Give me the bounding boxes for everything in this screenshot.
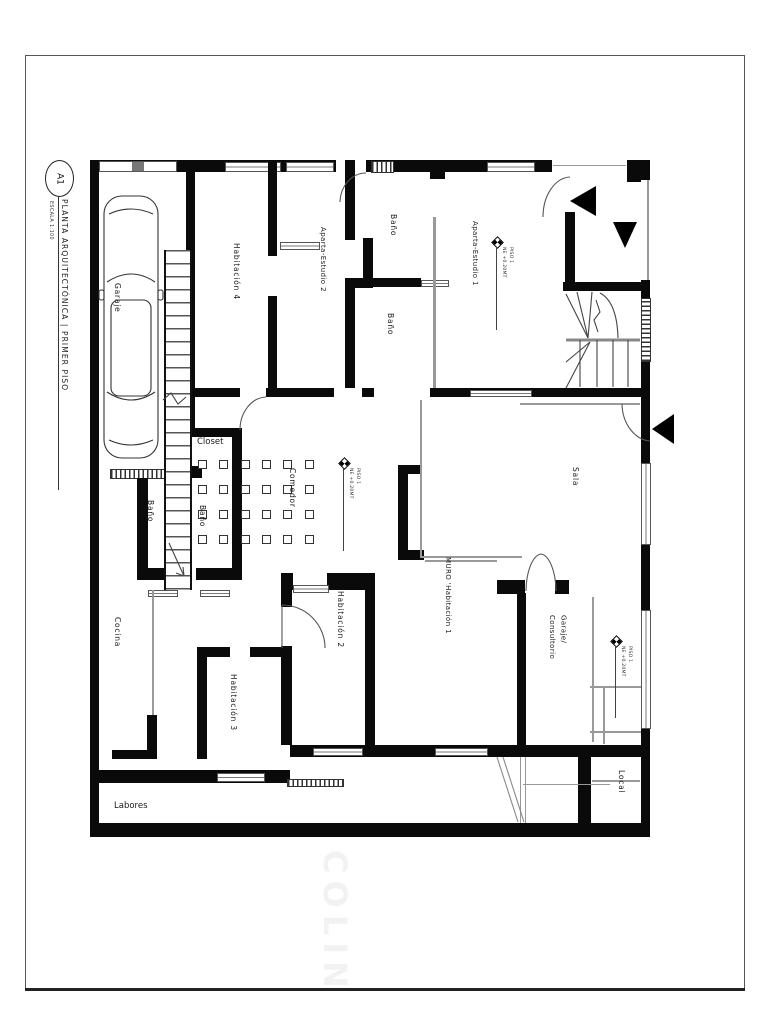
counter-line xyxy=(152,590,154,715)
room-label-labores: Labores xyxy=(114,801,148,811)
wall xyxy=(430,168,445,179)
thin-wall xyxy=(647,180,649,280)
wall xyxy=(196,568,242,580)
window xyxy=(487,162,535,172)
wall xyxy=(90,823,650,837)
room-label-bano: Baño xyxy=(389,214,398,236)
room-label-bano: Baño xyxy=(198,505,207,527)
room-label-aparta-estudio1: Aparta-Estudio 1 xyxy=(471,221,479,286)
room-label-sala: Sala xyxy=(571,467,580,486)
wall xyxy=(281,573,292,607)
room-label-bano: Baño xyxy=(146,500,155,522)
wall xyxy=(497,580,525,594)
wall xyxy=(90,160,99,837)
window xyxy=(286,162,334,172)
door-track xyxy=(603,686,605,744)
entrance-opening xyxy=(552,160,627,172)
dimension-line xyxy=(523,784,610,785)
room-label-habitacion4: Habitación 4 xyxy=(232,243,241,300)
door-sill xyxy=(200,590,230,597)
room-label-muro-habitacion1: MURO 'Habitación 1 xyxy=(444,557,452,634)
wall xyxy=(268,296,277,388)
window-hatch xyxy=(287,779,344,787)
wall xyxy=(112,750,157,759)
thin-wall xyxy=(590,731,641,733)
door-track xyxy=(592,597,594,742)
floor-line xyxy=(420,556,522,558)
window xyxy=(435,748,488,756)
level-marker-text: PISO 1 NE +0.20MT xyxy=(346,468,360,499)
thin-wall xyxy=(520,403,640,405)
wall xyxy=(137,478,148,578)
wall xyxy=(345,160,355,240)
room-label-garaje-consultorio: Garaje/ Consultorio xyxy=(546,615,568,659)
window xyxy=(470,390,532,397)
room-label-garaje: Garaje xyxy=(113,283,122,313)
sheet-code-bubble: A1 xyxy=(45,160,74,197)
level-marker-line xyxy=(343,468,344,551)
level-piso: PISO 1 xyxy=(506,247,513,278)
thin-wall xyxy=(425,560,497,562)
window xyxy=(313,748,363,756)
wall xyxy=(365,573,375,745)
wall xyxy=(627,160,650,182)
room-label-habitacion3: Habitación 3 xyxy=(229,674,238,731)
room-label-aparta-estudio2: Aparta-Estudio 2 xyxy=(319,227,327,292)
room-label-bano: Baño xyxy=(386,313,395,335)
level-marker-text: PISO 1 NE +0.20MT xyxy=(618,646,632,677)
wall xyxy=(268,160,277,256)
sheet-border xyxy=(25,55,745,991)
drawing-title: PLANTA ARQUITECTÓNICA | PRIMER PISO xyxy=(60,199,69,391)
wall xyxy=(398,465,408,560)
window xyxy=(641,463,651,545)
title-underline xyxy=(58,196,59,490)
wall xyxy=(563,282,650,291)
sheet-code: A1 xyxy=(55,173,65,185)
wall xyxy=(565,212,575,284)
room-label-line: Consultorio xyxy=(546,615,557,659)
entry-arrow-left xyxy=(570,186,596,216)
wall xyxy=(250,647,281,657)
wall xyxy=(563,388,650,397)
level-piso: PISO 1 xyxy=(353,468,360,499)
level-ne: NE +0.20MT xyxy=(499,247,506,278)
door-opening xyxy=(240,388,266,397)
side-stair xyxy=(164,250,192,590)
drawing-sheet: A1 PLANTA ARQUITECTÓNICA | PRIMER PISO E… xyxy=(0,0,768,1024)
window xyxy=(217,773,265,782)
level-ne: NE +0.20MT xyxy=(346,468,353,499)
thin-wall xyxy=(420,400,422,558)
door-opening xyxy=(334,388,362,397)
drawing-scale: ESCALA 1:100 xyxy=(48,201,53,240)
dimension-line xyxy=(520,757,521,823)
wall xyxy=(373,278,421,287)
window xyxy=(293,585,329,593)
room-label-habitacion2: Habitación 2 xyxy=(336,591,345,648)
room-label-comedor: Comedor xyxy=(288,468,297,508)
column-grid xyxy=(192,452,320,552)
thin-wall xyxy=(433,217,436,388)
wall xyxy=(555,580,569,594)
level-marker-line xyxy=(496,247,497,330)
level-marker-line xyxy=(615,646,616,718)
dimension-line xyxy=(525,757,526,823)
watermark: COLIN xyxy=(316,850,354,995)
wall xyxy=(197,647,207,759)
wall xyxy=(90,770,168,783)
entry-arrow-down xyxy=(613,222,637,248)
level-marker-text: PISO 1 NE +0.20MT xyxy=(499,247,513,278)
garage-door-opening xyxy=(99,161,177,172)
window-hatch xyxy=(641,298,651,362)
closet-rail xyxy=(280,242,320,250)
garage-door-opening xyxy=(641,610,651,729)
wall xyxy=(578,745,591,837)
entry-arrow-left xyxy=(652,414,674,444)
counter-line xyxy=(592,780,640,782)
sheet-bottom-rule xyxy=(25,988,745,991)
level-ne: NE +0.20MT xyxy=(618,646,625,677)
room-label-local: Local xyxy=(617,770,626,793)
wall xyxy=(281,646,292,745)
window-hatch xyxy=(371,161,394,173)
room-label-closet: Closet xyxy=(197,437,224,447)
level-piso: PISO 1 xyxy=(625,646,632,677)
wall xyxy=(345,288,355,388)
room-label-cocina: Cocina xyxy=(113,617,122,647)
room-label-line: Garaje/ xyxy=(557,615,568,659)
wall xyxy=(345,278,373,288)
wall xyxy=(517,593,526,745)
threshold-line xyxy=(553,165,626,166)
